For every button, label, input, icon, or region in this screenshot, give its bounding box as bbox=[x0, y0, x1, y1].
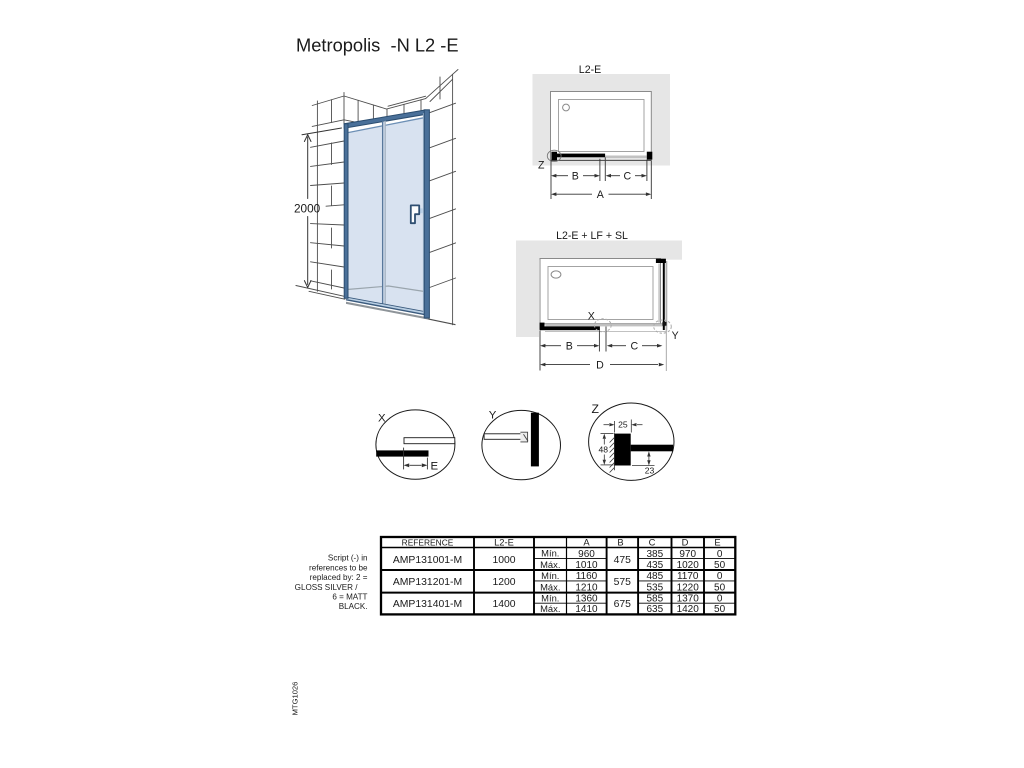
svg-text:1370: 1370 bbox=[677, 594, 700, 605]
svg-text:23: 23 bbox=[645, 466, 655, 476]
svg-text:1000: 1000 bbox=[492, 555, 515, 566]
svg-text:1020: 1020 bbox=[677, 560, 700, 571]
svg-text:0: 0 bbox=[717, 549, 723, 560]
svg-text:B: B bbox=[617, 537, 623, 548]
svg-text:1220: 1220 bbox=[677, 582, 700, 593]
svg-text:AMP131001-M: AMP131001-M bbox=[393, 555, 462, 566]
svg-text:6 = MATT: 6 = MATT bbox=[332, 593, 367, 602]
svg-text:1360: 1360 bbox=[575, 594, 598, 605]
svg-text:GLOSS SILVER /: GLOSS SILVER / bbox=[295, 583, 359, 592]
svg-text:50: 50 bbox=[714, 604, 726, 615]
svg-text:X: X bbox=[588, 311, 595, 323]
svg-text:A: A bbox=[597, 189, 605, 201]
svg-text:485: 485 bbox=[646, 571, 663, 582]
svg-text:E: E bbox=[714, 537, 720, 548]
svg-text:Z: Z bbox=[592, 402, 600, 416]
svg-text:585: 585 bbox=[646, 594, 663, 605]
svg-text:C: C bbox=[649, 537, 656, 548]
svg-text:475: 475 bbox=[614, 555, 632, 566]
svg-text:1420: 1420 bbox=[677, 604, 700, 615]
svg-text:Máx.: Máx. bbox=[540, 581, 560, 592]
svg-text:25: 25 bbox=[618, 419, 628, 429]
svg-text:Y: Y bbox=[672, 330, 679, 342]
svg-text:Máx.: Máx. bbox=[540, 559, 560, 570]
svg-text:970: 970 bbox=[679, 549, 696, 560]
svg-text:REFERENCE: REFERENCE bbox=[402, 537, 454, 547]
svg-text:replaced by: 2 =: replaced by: 2 = bbox=[310, 573, 368, 582]
svg-text:Y: Y bbox=[489, 410, 497, 422]
svg-text:Mín.: Mín. bbox=[541, 548, 559, 559]
svg-text:385: 385 bbox=[646, 549, 663, 560]
svg-text:675: 675 bbox=[614, 599, 632, 610]
svg-text:AMP131401-M: AMP131401-M bbox=[393, 599, 462, 610]
svg-text:B: B bbox=[572, 171, 579, 183]
svg-text:B: B bbox=[566, 341, 573, 353]
svg-text:Z: Z bbox=[538, 160, 545, 172]
svg-text:Script (-) in: Script (-) in bbox=[328, 554, 368, 563]
svg-text:50: 50 bbox=[714, 582, 726, 593]
svg-text:MTG1026: MTG1026 bbox=[291, 682, 300, 716]
svg-text:BLACK.: BLACK. bbox=[339, 602, 368, 611]
svg-text:Metropolis -N L2 -E: Metropolis -N L2 -E bbox=[296, 35, 459, 56]
svg-text:0: 0 bbox=[717, 594, 723, 605]
svg-text:1410: 1410 bbox=[575, 604, 598, 615]
svg-text:435: 435 bbox=[646, 560, 663, 571]
svg-text:575: 575 bbox=[614, 577, 632, 588]
svg-text:1160: 1160 bbox=[576, 571, 598, 582]
svg-text:Mín.: Mín. bbox=[541, 592, 559, 603]
svg-text:535: 535 bbox=[646, 582, 663, 593]
svg-text:1210: 1210 bbox=[575, 582, 598, 593]
svg-text:635: 635 bbox=[646, 604, 663, 615]
svg-text:2000: 2000 bbox=[294, 202, 321, 216]
svg-text:D: D bbox=[596, 359, 604, 371]
svg-text:Mín.: Mín. bbox=[541, 570, 559, 581]
svg-text:E: E bbox=[431, 460, 439, 472]
svg-text:1200: 1200 bbox=[492, 577, 515, 588]
svg-text:X: X bbox=[378, 413, 386, 425]
svg-text:1170: 1170 bbox=[677, 571, 699, 582]
svg-text:1400: 1400 bbox=[492, 599, 515, 610]
svg-text:50: 50 bbox=[714, 560, 726, 571]
svg-text:0: 0 bbox=[717, 571, 723, 582]
svg-text:C: C bbox=[630, 341, 638, 353]
svg-text:D: D bbox=[682, 537, 689, 548]
svg-text:AMP131201-M: AMP131201-M bbox=[393, 577, 462, 588]
svg-text:C: C bbox=[623, 171, 631, 183]
svg-text:1010: 1010 bbox=[575, 560, 598, 571]
svg-text:L2-E: L2-E bbox=[494, 537, 514, 548]
svg-text:A: A bbox=[583, 537, 590, 548]
svg-text:L2-E + LF + SL: L2-E + LF + SL bbox=[556, 230, 628, 242]
svg-text:Máx.: Máx. bbox=[540, 603, 560, 614]
svg-text:references to be: references to be bbox=[309, 563, 368, 572]
svg-text:960: 960 bbox=[578, 549, 595, 560]
svg-text:48: 48 bbox=[599, 444, 609, 454]
